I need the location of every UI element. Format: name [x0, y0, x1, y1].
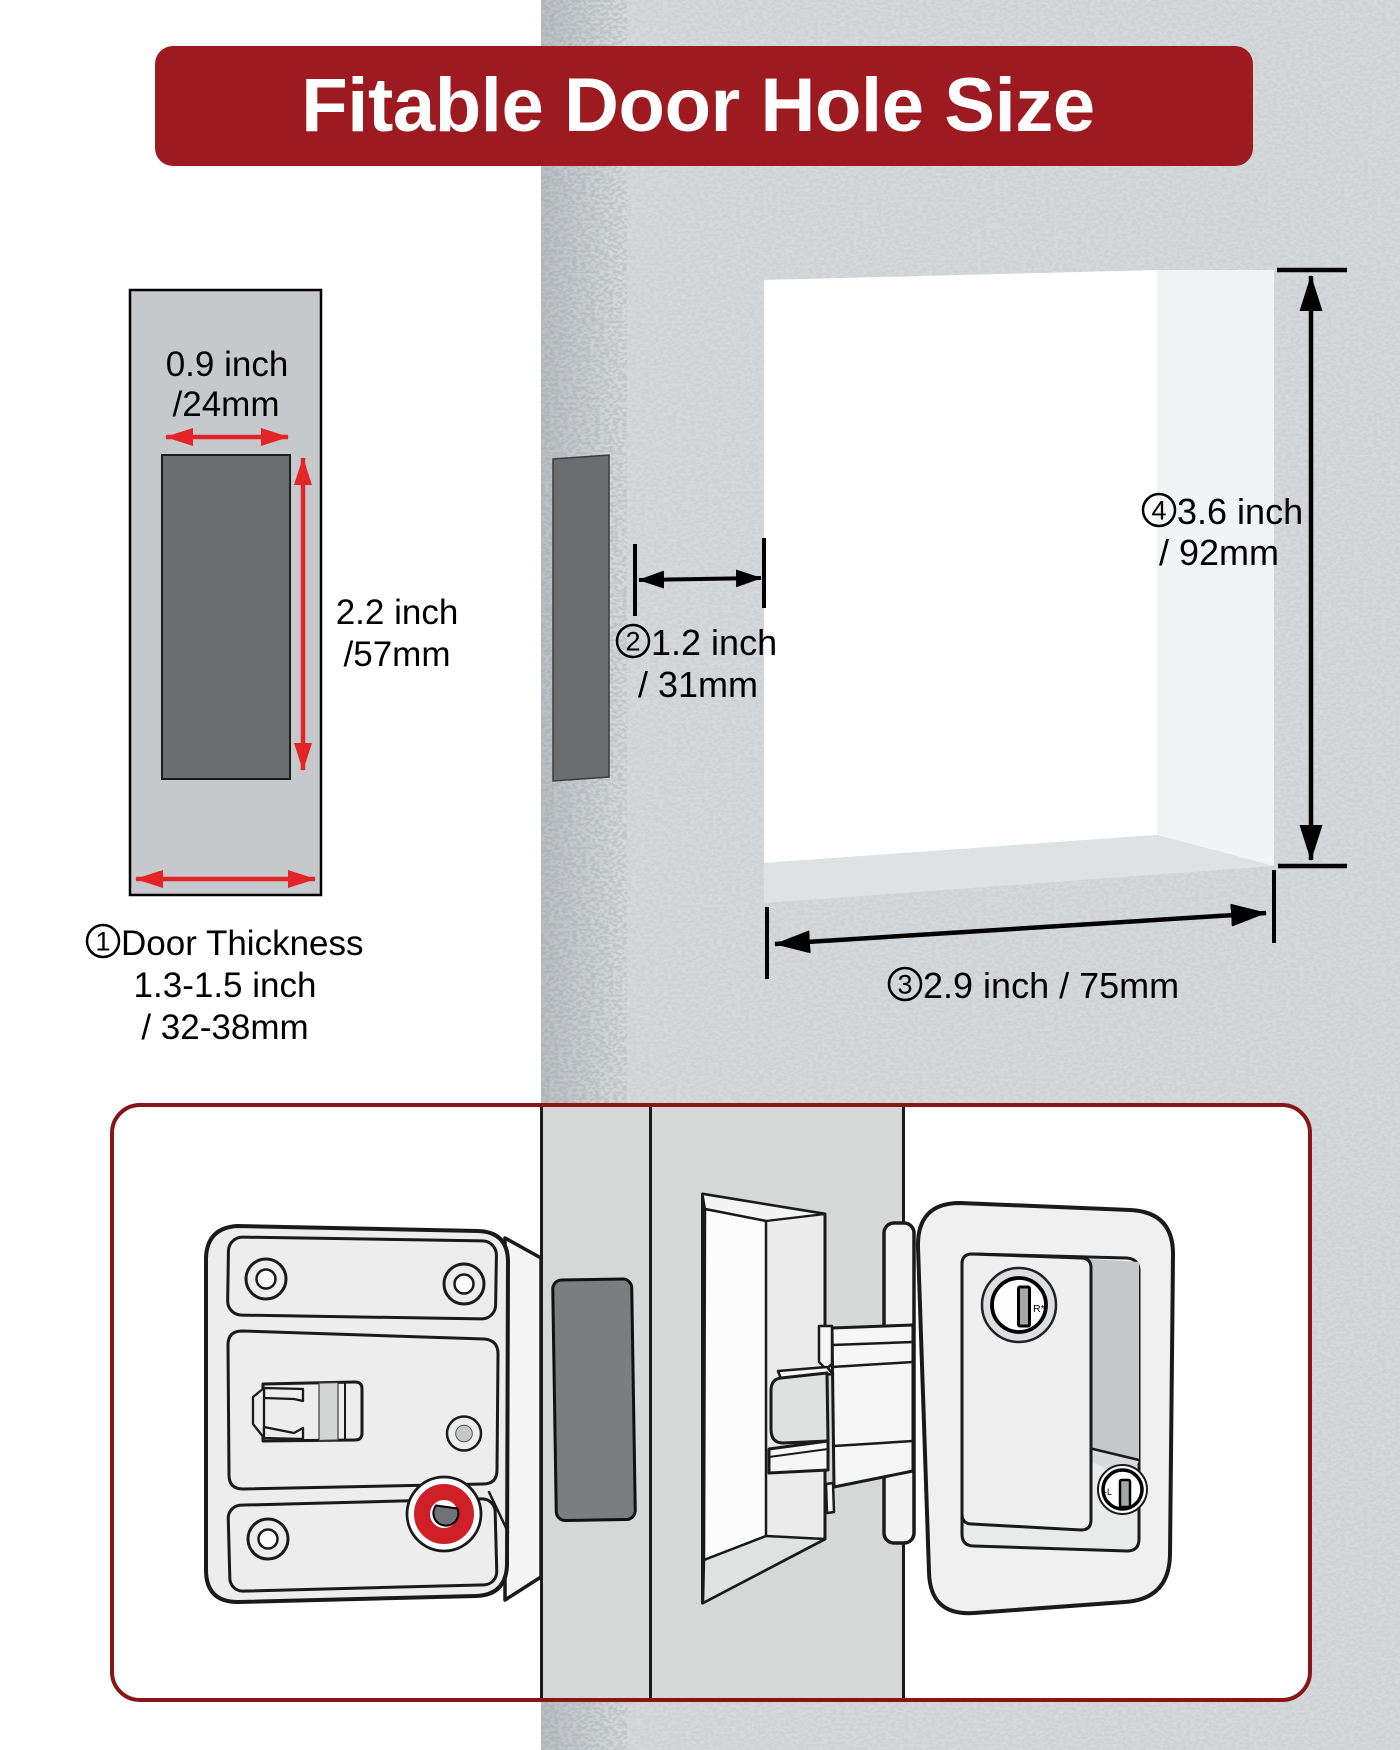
- svg-text:4: 4: [1151, 496, 1166, 526]
- svg-text:2: 2: [625, 627, 640, 657]
- svg-text:3: 3: [897, 970, 912, 1000]
- svg-text:-L: -L: [1104, 1487, 1112, 1497]
- svg-text:R*: R*: [1033, 1303, 1045, 1315]
- svg-text:Door Thickness: Door Thickness: [121, 924, 364, 963]
- svg-text:/ 32-38mm: / 32-38mm: [141, 1008, 308, 1047]
- svg-text:/57mm: /57mm: [344, 635, 451, 674]
- svg-text:2.9 inch / 75mm: 2.9 inch / 75mm: [923, 965, 1179, 1006]
- svg-text:1: 1: [95, 927, 110, 957]
- svg-text:/24mm: /24mm: [173, 385, 280, 424]
- svg-text:/ 31mm: / 31mm: [638, 664, 758, 705]
- svg-text:1.3-1.5 inch: 1.3-1.5 inch: [134, 966, 317, 1005]
- svg-text:3.6 inch: 3.6 inch: [1177, 491, 1303, 532]
- svg-text:/ 92mm: / 92mm: [1159, 532, 1279, 573]
- svg-text:0.9 inch: 0.9 inch: [166, 345, 289, 384]
- svg-text:1.2 inch: 1.2 inch: [651, 622, 777, 663]
- svg-text:2.2 inch: 2.2 inch: [336, 593, 459, 632]
